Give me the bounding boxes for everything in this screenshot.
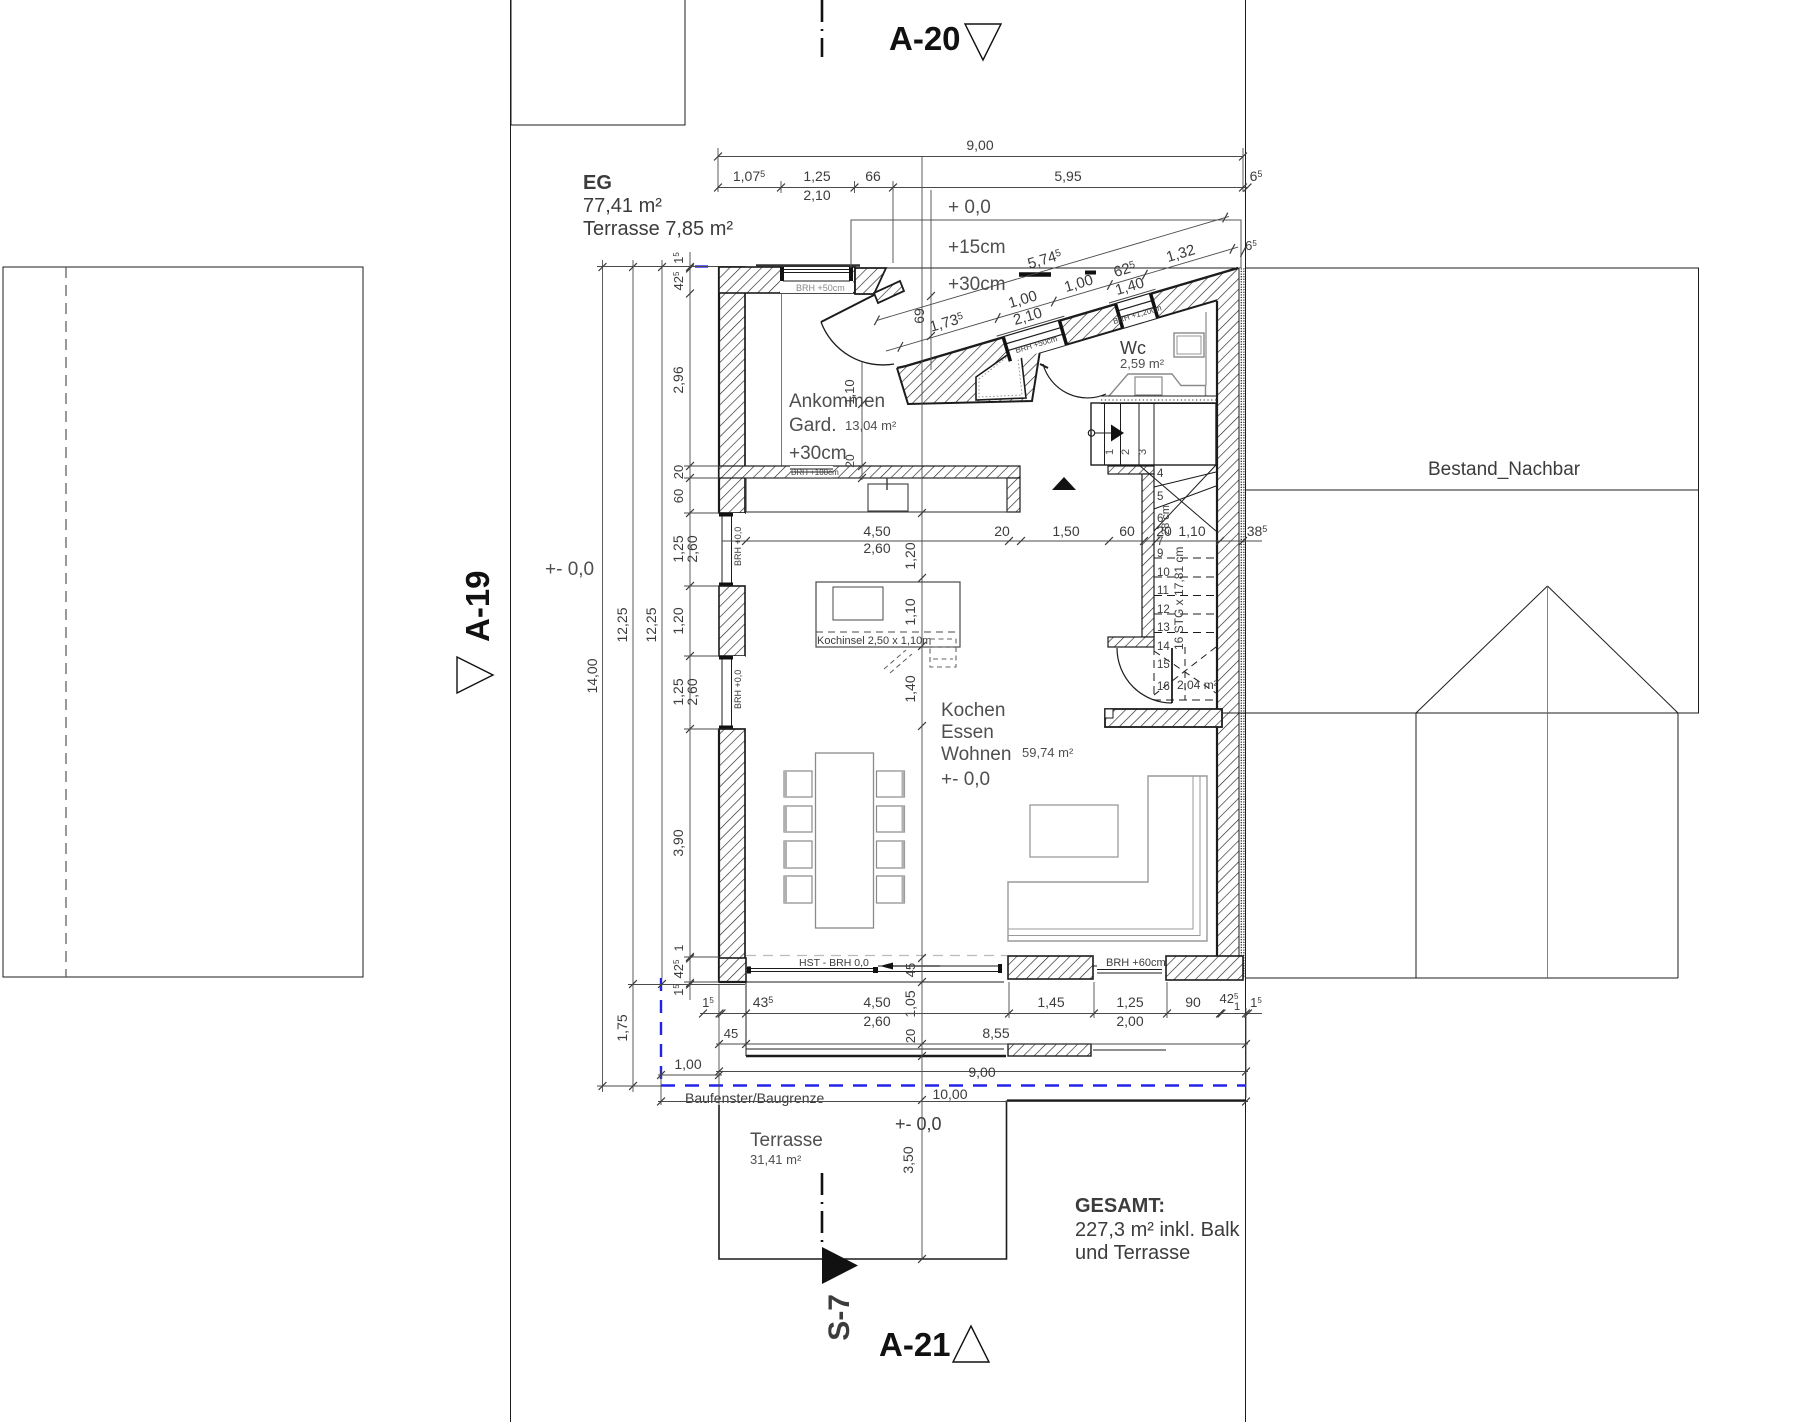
svg-text:31,41 m²: 31,41 m²	[750, 1152, 802, 1167]
svg-text:5,95: 5,95	[1054, 168, 1081, 184]
svg-text:1: 1	[672, 944, 686, 951]
svg-text:2,00: 2,00	[1116, 1013, 1143, 1029]
svg-text:GESAMT:: GESAMT:	[1075, 1195, 1165, 1217]
svg-text:20: 20	[903, 1029, 918, 1043]
svg-text:A-21: A-21	[879, 1326, 951, 1363]
svg-text:1,10: 1,10	[1178, 523, 1205, 539]
svg-text:Ankommen: Ankommen	[789, 391, 885, 412]
svg-text:1,25: 1,25	[803, 168, 830, 184]
svg-text:Wc: Wc	[1120, 338, 1146, 358]
svg-text:12,25: 12,25	[643, 607, 659, 642]
svg-text:12: 12	[1157, 604, 1170, 616]
svg-text:66: 66	[865, 168, 881, 184]
svg-text:2: 2	[1120, 449, 1132, 455]
svg-text:und Terrasse: und Terrasse	[1075, 1242, 1190, 1264]
svg-text:77,41 m²: 77,41 m²	[583, 195, 662, 217]
svg-text:+30cm: +30cm	[789, 443, 847, 464]
svg-text:1,20: 1,20	[670, 607, 686, 634]
svg-text:20: 20	[843, 454, 857, 468]
svg-text:1,75: 1,75	[614, 1014, 630, 1041]
svg-text:10,00: 10,00	[932, 1086, 967, 1102]
svg-text:+15cm: +15cm	[948, 237, 1006, 258]
svg-text:45: 45	[724, 1026, 738, 1041]
svg-text:+- 0,0: +- 0,0	[941, 769, 990, 790]
svg-text:9: 9	[1157, 548, 1163, 560]
svg-text:59,74 m²: 59,74 m²	[1022, 745, 1074, 760]
svg-text:5: 5	[1157, 491, 1163, 503]
svg-text:+ 0,0: + 0,0	[948, 197, 991, 218]
svg-text:2,96: 2,96	[670, 366, 686, 393]
svg-text:2,60: 2,60	[684, 678, 700, 705]
svg-text:20: 20	[994, 523, 1010, 539]
svg-text:60: 60	[671, 489, 686, 503]
svg-text:4,50: 4,50	[863, 523, 890, 539]
svg-text:Baufenster/Baugrenze: Baufenster/Baugrenze	[685, 1090, 825, 1106]
svg-text:13,04 m²: 13,04 m²	[845, 418, 897, 433]
svg-text:4,50: 4,50	[863, 994, 890, 1010]
svg-text:2,04 m²: 2,04 m²	[1177, 678, 1218, 692]
svg-text:14: 14	[1157, 641, 1170, 653]
svg-text:1,00: 1,00	[674, 1056, 701, 1072]
svg-text:Kochen: Kochen	[941, 700, 1005, 721]
svg-text:10: 10	[1157, 567, 1170, 579]
svg-text:1,10: 1,10	[842, 379, 857, 404]
svg-text:BRH +100cm: BRH +100cm	[791, 468, 839, 477]
svg-text:HST - BRH 0,0: HST - BRH 0,0	[799, 957, 869, 969]
svg-text:90: 90	[1185, 994, 1201, 1010]
svg-text:Kochinsel 2,50 x 1,10m: Kochinsel 2,50 x 1,10m	[817, 635, 931, 647]
svg-text:20: 20	[1156, 523, 1172, 539]
svg-text:2,60: 2,60	[684, 535, 700, 562]
svg-text:Gard.: Gard.	[789, 415, 837, 436]
svg-text:3,90: 3,90	[670, 829, 686, 856]
svg-text:Terrasse: Terrasse	[750, 1130, 823, 1151]
svg-text:Wohnen: Wohnen	[941, 744, 1011, 765]
svg-text:+- 0,0: +- 0,0	[895, 1114, 942, 1134]
svg-text:2,60: 2,60	[863, 540, 890, 556]
svg-text:15: 15	[1157, 659, 1170, 671]
svg-text:2,10: 2,10	[803, 187, 830, 203]
svg-text:227,3 m² inkl. Balk: 227,3 m² inkl. Balk	[1075, 1219, 1241, 1241]
svg-text:16: 16	[1157, 681, 1170, 693]
svg-text:1,45: 1,45	[1037, 994, 1064, 1010]
svg-text:13: 13	[1157, 622, 1170, 634]
svg-text:69: 69	[911, 308, 927, 324]
svg-text:14,00: 14,00	[584, 658, 600, 693]
svg-text:2,60: 2,60	[863, 1013, 890, 1029]
svg-text:45: 45	[903, 963, 918, 977]
svg-text:11: 11	[1157, 585, 1169, 597]
svg-text:BRH +60cm: BRH +60cm	[1106, 957, 1166, 969]
svg-text:BRH +50cm: BRH +50cm	[796, 283, 845, 293]
svg-text:4: 4	[1157, 468, 1164, 480]
svg-text:8,55: 8,55	[982, 1025, 1009, 1041]
svg-text:A-20: A-20	[889, 20, 961, 57]
svg-text:3: 3	[1137, 449, 1149, 455]
svg-text:9,00: 9,00	[966, 137, 993, 153]
svg-text:Terrasse 7,85 m²: Terrasse 7,85 m²	[583, 218, 733, 240]
svg-text:20: 20	[671, 465, 686, 479]
svg-text:9,00: 9,00	[968, 1064, 995, 1080]
svg-text:A-19: A-19	[459, 570, 496, 642]
svg-text:Essen: Essen	[941, 722, 994, 743]
svg-text:1,50: 1,50	[1052, 523, 1079, 539]
svg-text:Bestand_Nachbar: Bestand_Nachbar	[1428, 459, 1581, 480]
svg-text:12,25: 12,25	[614, 607, 630, 642]
svg-text:+- 0,0: +- 0,0	[545, 559, 594, 580]
svg-text:16 STG x 17,81 cm: 16 STG x 17,81 cm	[1172, 547, 1186, 650]
svg-text:1: 1	[1104, 449, 1116, 455]
svg-text:2,59 m²: 2,59 m²	[1120, 356, 1165, 371]
svg-text:S-7: S-7	[823, 1294, 856, 1341]
svg-text:1,10: 1,10	[902, 598, 918, 625]
svg-text:3,50: 3,50	[900, 1146, 916, 1173]
svg-text:1,25: 1,25	[1116, 994, 1143, 1010]
svg-text:EG: EG	[583, 172, 612, 194]
svg-text:1,20: 1,20	[902, 542, 918, 569]
svg-text:1,40: 1,40	[902, 675, 918, 702]
svg-text:60: 60	[1119, 523, 1135, 539]
svg-text:BRH +0,0: BRH +0,0	[733, 670, 743, 709]
svg-text:BRH +0,0: BRH +0,0	[733, 527, 743, 566]
svg-text:1: 1	[1234, 1001, 1240, 1013]
